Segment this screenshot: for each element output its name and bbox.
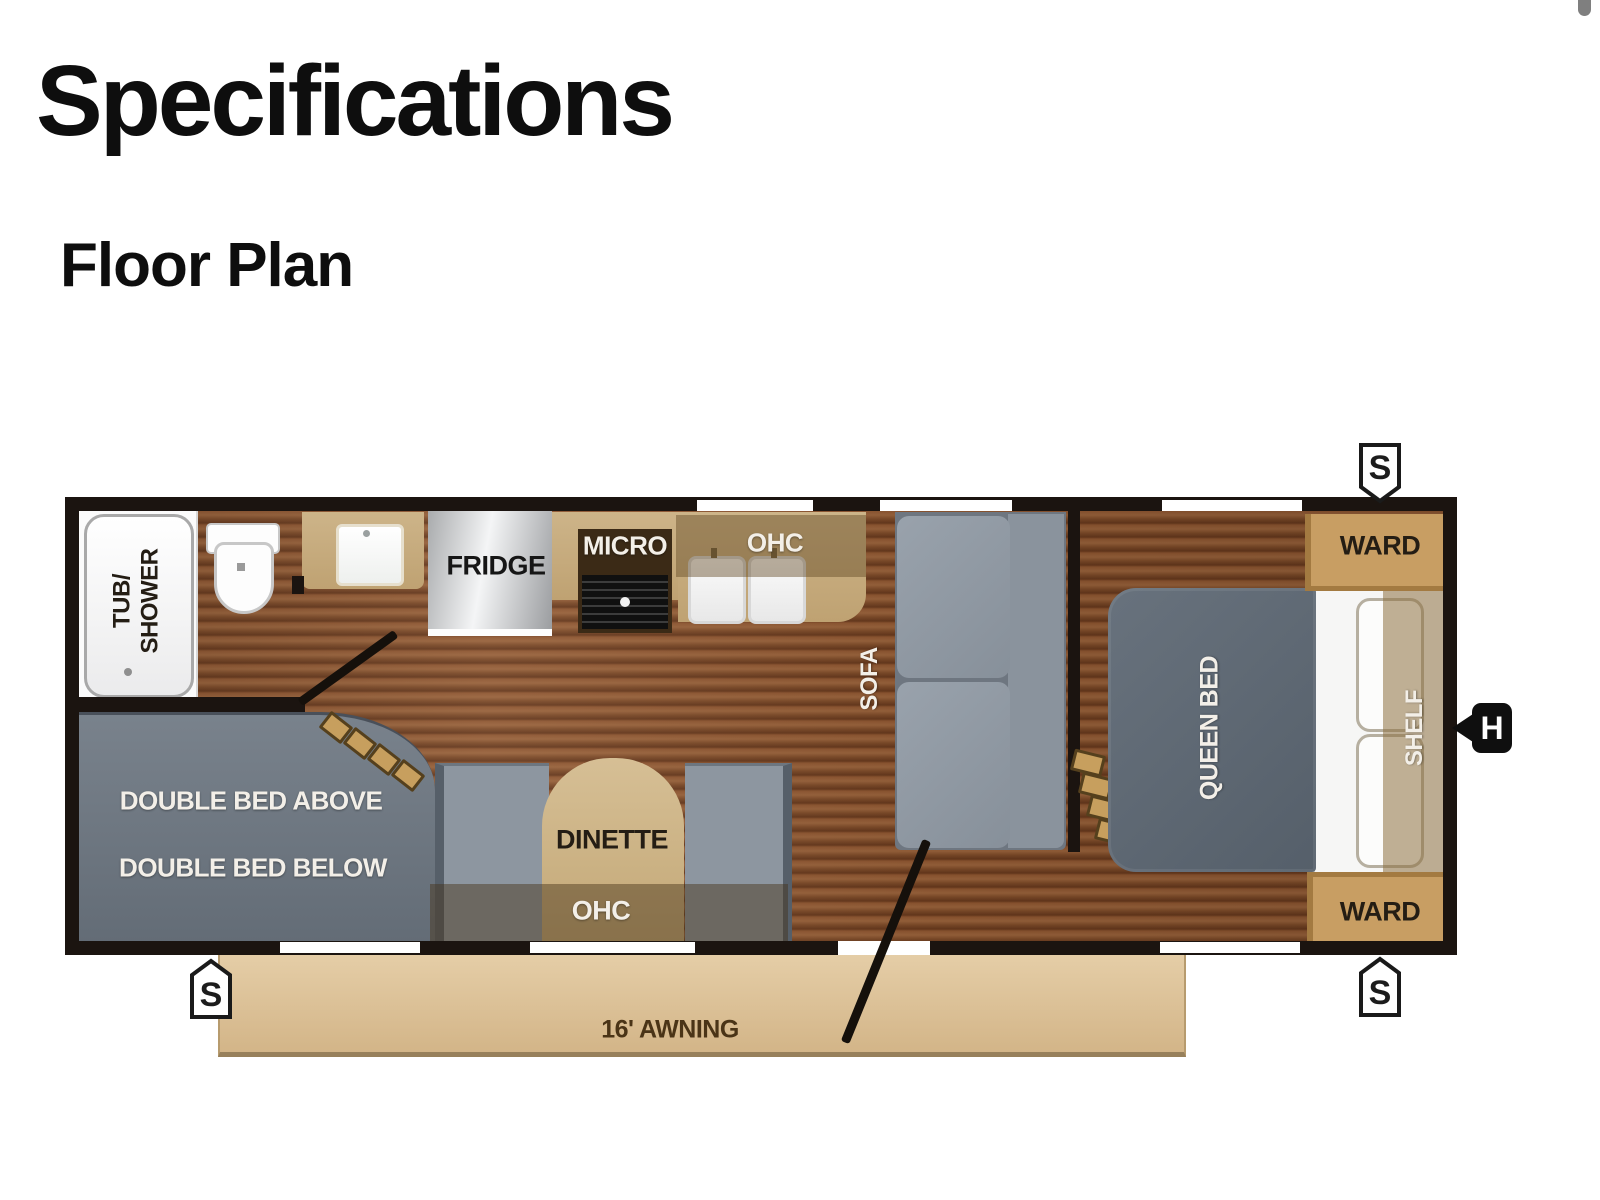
wall-left bbox=[65, 497, 79, 955]
tub-label-line1: TUB/ bbox=[108, 549, 136, 654]
marker-h: H bbox=[1472, 703, 1512, 753]
marker-letter: S bbox=[1358, 974, 1402, 1013]
tub-label-line2: SHOWER bbox=[136, 549, 164, 654]
window bbox=[1162, 500, 1302, 511]
marker-s-bottom-right: S bbox=[1358, 956, 1402, 1018]
dinette-ohc-label: OHC bbox=[572, 896, 631, 927]
burner-icon bbox=[620, 597, 630, 607]
bunk-below-label: DOUBLE BED BELOW bbox=[119, 853, 387, 884]
dinette-label: DINETTE bbox=[556, 825, 668, 856]
toilet-bowl bbox=[214, 542, 274, 614]
door-jamb bbox=[292, 576, 304, 594]
ward-bottom-label: WARD bbox=[1340, 897, 1421, 928]
bathroom-wall bbox=[65, 697, 305, 712]
awning-label: 16' AWNING bbox=[601, 1016, 739, 1045]
window bbox=[697, 500, 813, 511]
partition-wall bbox=[1068, 511, 1080, 852]
window bbox=[1160, 942, 1300, 953]
page: Specifications Floor Plan 16' AWNING TUB… bbox=[0, 0, 1600, 1200]
queen-bed-label: QUEEN BED bbox=[1196, 656, 1225, 800]
sofa-cushion-bottom bbox=[897, 682, 1010, 848]
window bbox=[530, 942, 695, 953]
bunk-above-label: DOUBLE BED ABOVE bbox=[120, 786, 383, 817]
sofa-back bbox=[1008, 514, 1064, 848]
toilet-flush-icon bbox=[237, 563, 245, 571]
shelf-label: SHELF bbox=[1401, 690, 1429, 766]
marker-letter: S bbox=[189, 976, 233, 1015]
sofa-label: SOFA bbox=[856, 647, 884, 710]
tub-drain-icon bbox=[124, 668, 132, 676]
tub-shower-label: TUB/ SHOWER bbox=[108, 549, 163, 654]
window bbox=[880, 500, 1012, 511]
vanity-sink bbox=[336, 524, 404, 586]
sofa-cushion-top bbox=[897, 516, 1010, 678]
ward-top-label: WARD bbox=[1340, 531, 1421, 562]
h-pointer-icon bbox=[1452, 714, 1473, 742]
marker-s-top: S bbox=[1358, 442, 1402, 504]
kitchen-ohc-label: OHC bbox=[747, 528, 803, 559]
sofa bbox=[895, 512, 1066, 850]
marker-letter: H bbox=[1472, 710, 1512, 747]
faucet-icon bbox=[363, 530, 370, 537]
marker-s-bottom-left: S bbox=[189, 958, 233, 1020]
window bbox=[280, 942, 420, 953]
floor-plan: 16' AWNING TUB/ SHOWER FRIDGE MICRO bbox=[0, 0, 1600, 1200]
micro-label: MICRO bbox=[583, 531, 667, 562]
marker-letter: S bbox=[1358, 449, 1402, 488]
fridge-label: FRIDGE bbox=[446, 551, 545, 582]
